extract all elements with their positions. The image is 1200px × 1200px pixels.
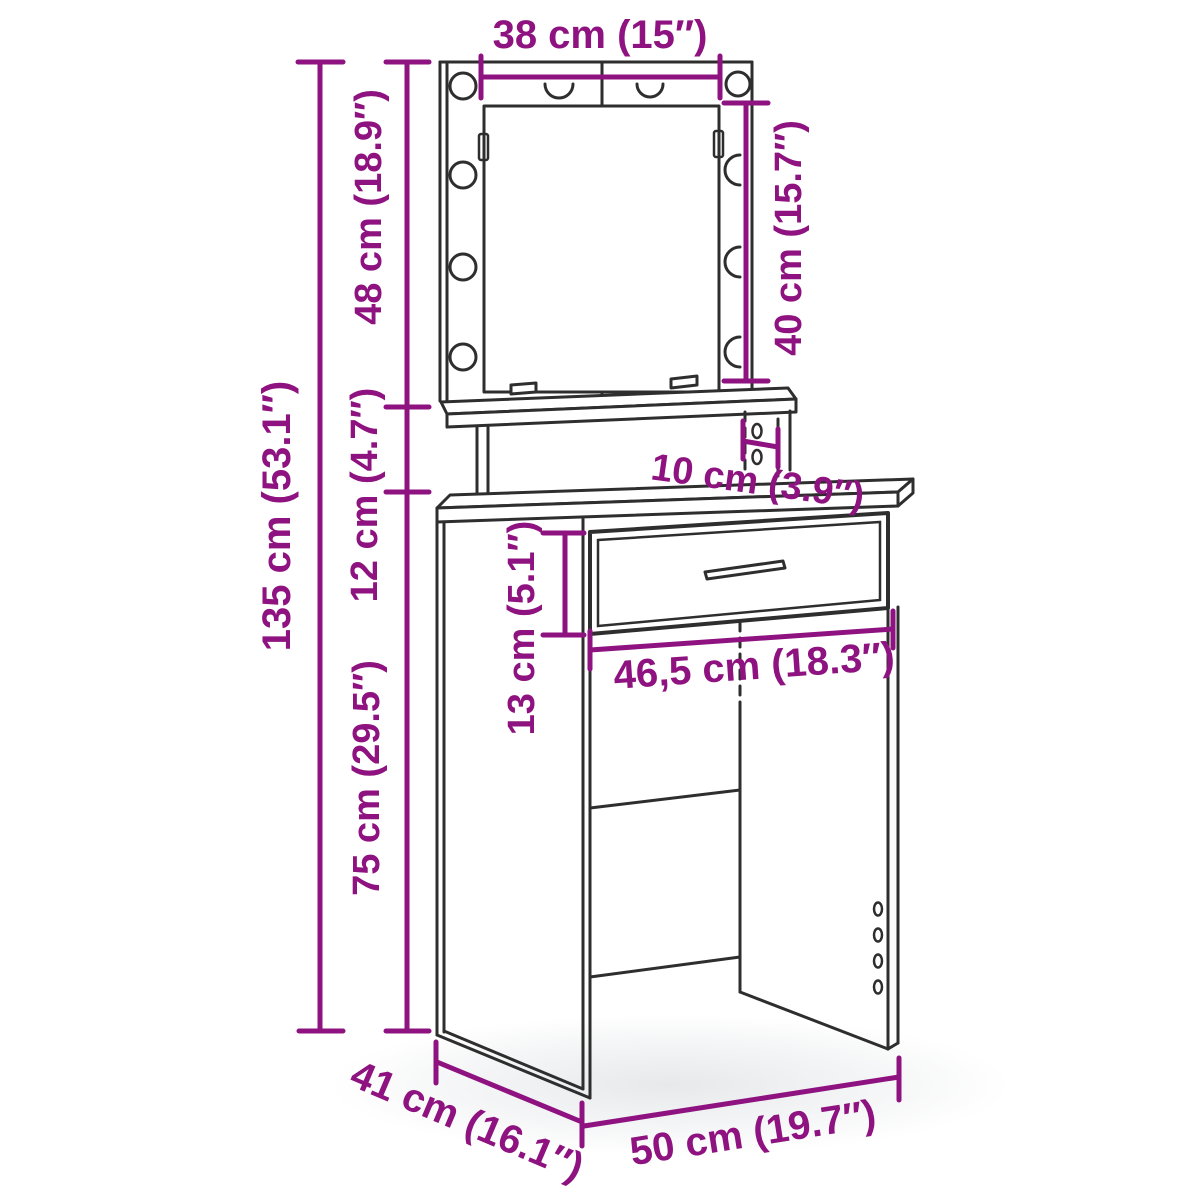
screw-hole <box>874 929 882 942</box>
dim-drawer-front-height: 13 cm (5.1″) <box>501 521 584 736</box>
dimension-label-shelf-section-height: 12 cm (4.7″) <box>344 388 386 603</box>
mirror-foot-left <box>511 383 536 394</box>
led-bulb <box>450 344 476 370</box>
drawer <box>590 513 888 634</box>
dimension-label-total-height: 135 cm (53.1″) <box>255 381 299 651</box>
dimension-label-drawer-front-height: 13 cm (5.1″) <box>501 521 543 736</box>
led-bulbs <box>450 72 750 370</box>
screw-hole <box>753 424 762 438</box>
dressing-table-dimension-diagram: 38 cm (15″) 135 cm (53.1″) 48 cm (18.9″)… <box>0 0 1200 1200</box>
screw-hole <box>874 955 882 968</box>
led-bulb <box>637 84 663 97</box>
screw-hole <box>874 981 882 994</box>
led-bulb <box>726 72 750 96</box>
screw-hole <box>874 903 882 916</box>
led-bulb <box>725 337 740 367</box>
led-bulb <box>450 254 476 280</box>
back-support-panel <box>590 790 740 808</box>
dimension-label-table-section-height: 75 cm (29.5″) <box>346 660 388 896</box>
dimension-label-mirror-width: 38 cm (15″) <box>493 13 708 57</box>
dim-height-chain: 48 cm (18.9″) 12 cm (4.7″) 75 cm (29.5″) <box>344 62 429 1031</box>
mirror-foot-right <box>671 376 697 388</box>
dimension-label-mirror-panel-height: 48 cm (18.9″) <box>348 89 390 325</box>
led-bulb <box>450 73 476 99</box>
led-bulb <box>725 247 740 277</box>
dimension-label-mirror-height: 40 cm (15.7″) <box>768 120 810 356</box>
dim-mirror-height: 40 cm (15.7″) <box>724 103 810 381</box>
mirror-panel <box>440 62 752 406</box>
mirror-glass <box>484 106 719 392</box>
back-support-panel <box>590 957 740 977</box>
diagram-canvas: 38 cm (15″) 135 cm (53.1″) 48 cm (18.9″)… <box>0 0 1200 1200</box>
led-bulb <box>545 84 573 98</box>
dim-total-height: 135 cm (53.1″) <box>255 62 343 1031</box>
led-bulb <box>725 155 740 185</box>
led-bulb <box>450 162 476 188</box>
